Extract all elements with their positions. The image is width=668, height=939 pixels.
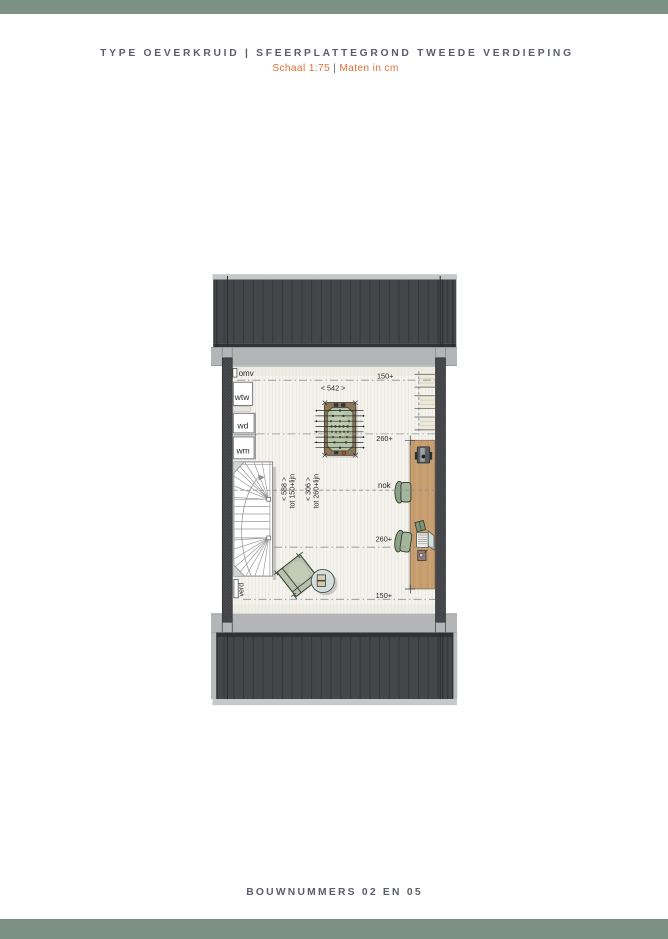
svg-text:wtw: wtw (234, 392, 251, 402)
svg-text:nok: nok (378, 481, 391, 490)
svg-text:< 306 >: < 306 > (305, 477, 313, 501)
svg-text:260+: 260+ (376, 535, 392, 544)
svg-text:verd: verd (239, 583, 246, 597)
svg-text:260+: 260+ (376, 434, 392, 443)
svg-text:< 542 >: < 542 > (321, 384, 346, 393)
svg-text:tot 150+lijn: tot 150+lijn (289, 474, 297, 509)
svg-text:omv: omv (239, 369, 254, 378)
svg-text:< 588 >: < 588 > (281, 477, 289, 501)
svg-text:wm: wm (236, 446, 250, 456)
svg-text:wd: wd (237, 421, 249, 431)
svg-text:150+: 150+ (376, 591, 392, 600)
svg-text:150+: 150+ (377, 372, 393, 381)
svg-text:tot 260+lijn: tot 260+lijn (313, 474, 321, 509)
